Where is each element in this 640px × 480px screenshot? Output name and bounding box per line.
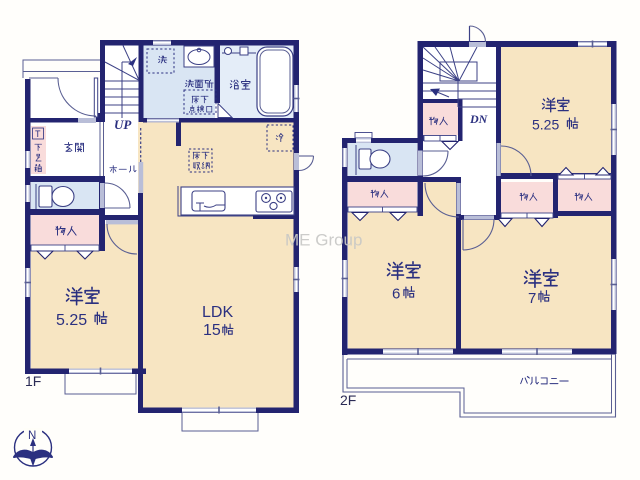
svg-text:ME Group: ME Group [285, 231, 362, 250]
svg-text:6: 6 [392, 286, 400, 303]
svg-text:7: 7 [528, 290, 536, 307]
svg-text:2F: 2F [340, 392, 356, 408]
svg-text:LDK: LDK [202, 304, 233, 321]
svg-text:5.25: 5.25 [532, 117, 559, 133]
svg-text:DN: DN [469, 112, 489, 126]
svg-text:T: T [35, 129, 41, 139]
svg-text:N: N [28, 430, 36, 442]
svg-text:5.25: 5.25 [56, 312, 87, 329]
svg-text:1F: 1F [25, 373, 41, 389]
svg-text:UP: UP [114, 117, 132, 132]
svg-text:15: 15 [203, 322, 221, 339]
